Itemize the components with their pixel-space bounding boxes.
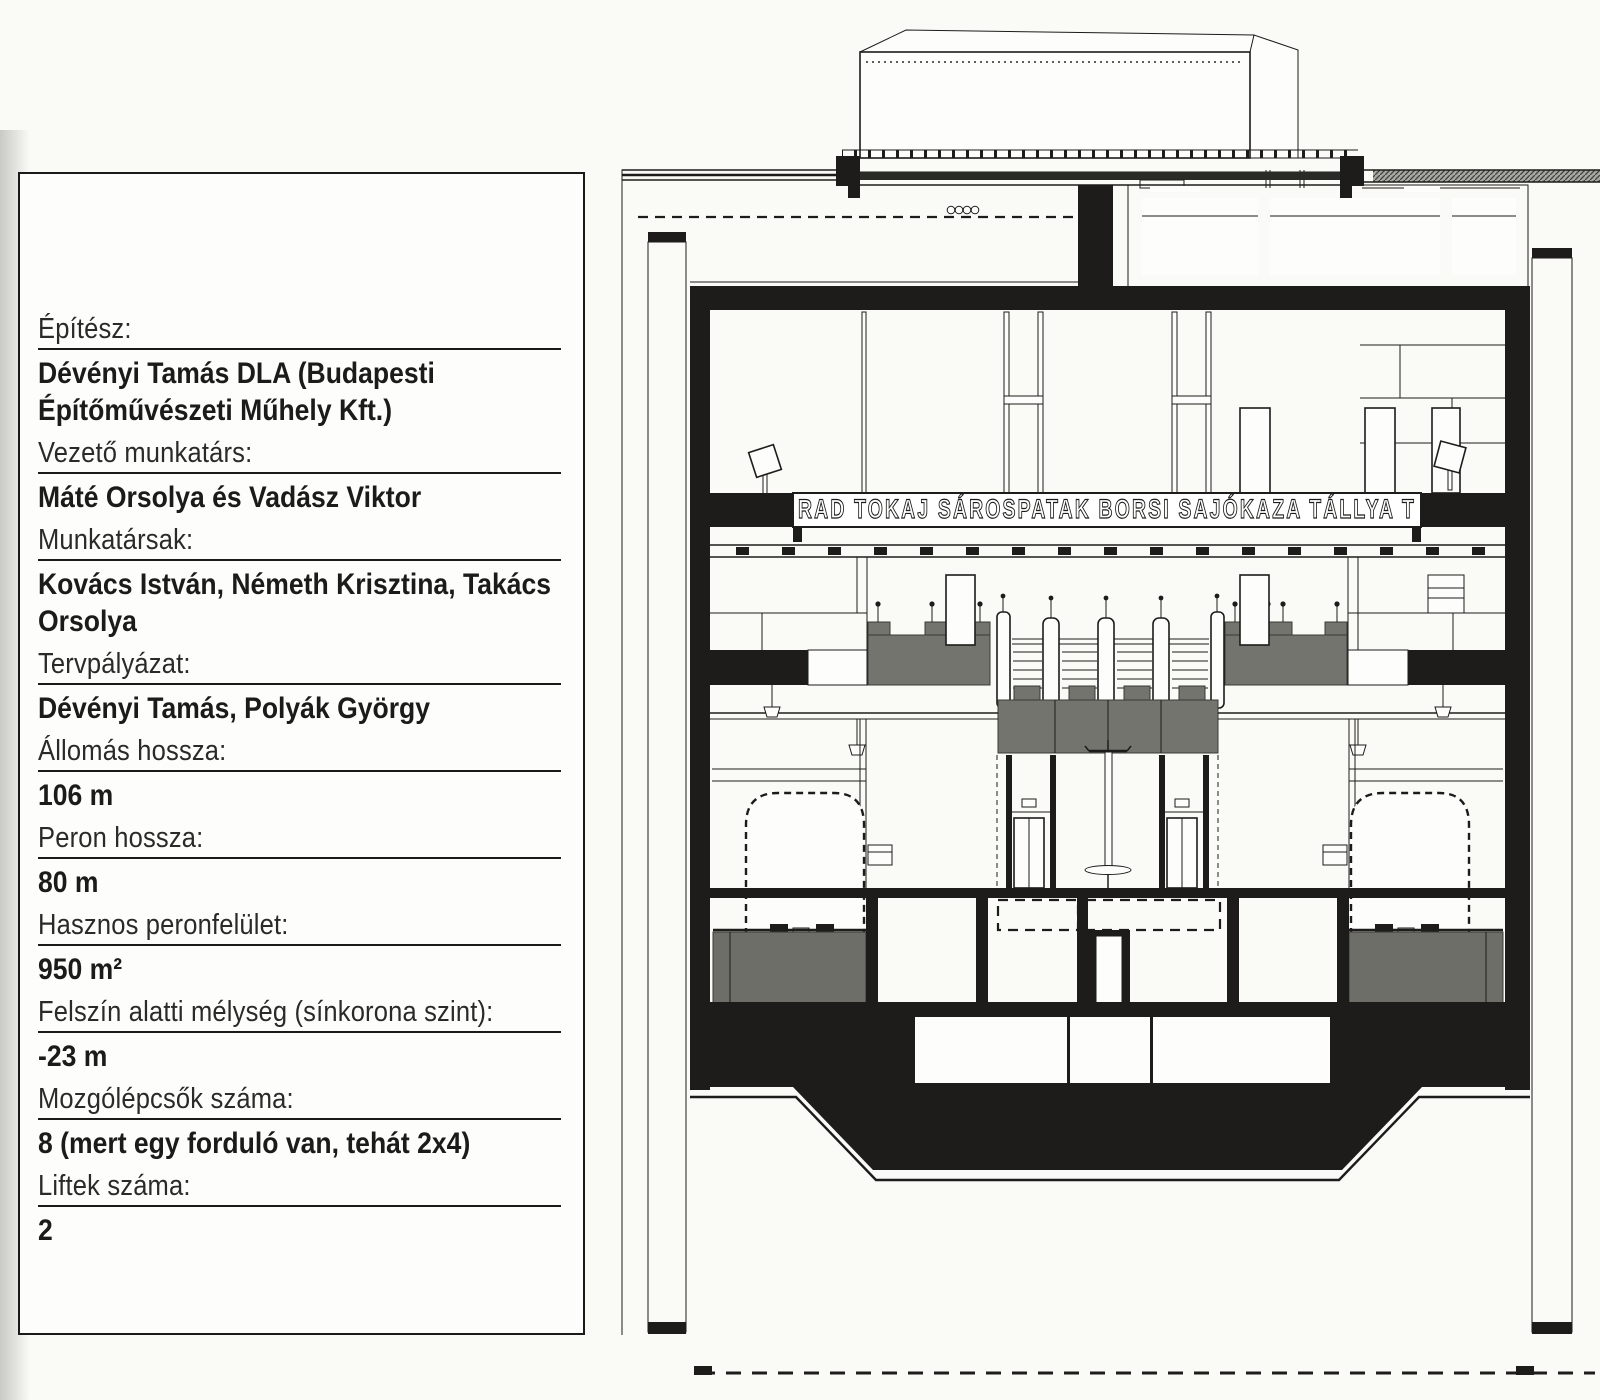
hall-column-pair-left: [1004, 312, 1043, 493]
base-room: [1070, 1017, 1150, 1083]
concourse-slab: [710, 545, 1505, 557]
platform-slab: [710, 888, 1505, 898]
vent-circles: [947, 206, 979, 214]
escalator-bank: [997, 594, 1224, 753]
mezzanine-level: [690, 557, 1530, 753]
diaphragm-wall-right: [1532, 258, 1572, 1332]
base-room: [1153, 1017, 1330, 1083]
train-right: [1351, 793, 1469, 936]
canopy-end-left: [836, 156, 860, 198]
field-value: Kovács István, Németh Krisztina, Takács …: [38, 566, 561, 640]
mezzanine-rooms-right: [1348, 557, 1505, 650]
sign-flag-left: [749, 445, 782, 494]
field-value: 950 m²: [38, 951, 561, 988]
mezzanine-beam-left: [690, 650, 808, 685]
frieze-text: RAD TOKAJ SÁROSPATAK BORSI SAJÓKAZA TÁLL…: [798, 493, 1416, 524]
hall-column-pair-right: [1172, 312, 1211, 493]
project-data-panel: Építész: Dévényi Tamás DLA (Budapesti Ép…: [18, 172, 585, 1335]
platform-lamp-post: [1085, 740, 1131, 888]
left-wall: [690, 287, 710, 1090]
mezzanine-door-right: [1240, 575, 1269, 645]
frieze-band: RAD TOKAJ SÁROSPATAK BORSI SAJÓKAZA TÁLL…: [690, 493, 1530, 542]
field-label: Liftek száma:: [38, 1171, 561, 1207]
handrail-posts: [1001, 594, 1220, 618]
track-bed-right: [1349, 930, 1503, 1003]
field-label: Állomás hossza:: [38, 736, 561, 772]
field-label: Munkatársak:: [38, 525, 561, 561]
field-value: 8 (mert egy forduló van, tehát 2x4): [38, 1125, 561, 1162]
train-left: [746, 793, 864, 936]
field-label: Építész:: [38, 314, 561, 350]
field-label: Vezető munkatárs:: [38, 438, 561, 474]
speaker-box-left: [868, 845, 892, 865]
track-bed-left: [713, 930, 866, 1003]
mezzanine-beam-right: [1408, 650, 1530, 685]
hall-doors-right: [1240, 408, 1460, 493]
hall-column: [862, 312, 866, 493]
field-value: Máté Orsolya és Vadász Viktor: [38, 479, 561, 516]
duct-dashed-left: [998, 900, 1078, 930]
diaphragm-wall-left: [648, 242, 686, 1332]
mezzanine-rooms-left: [710, 557, 867, 650]
ticket-hall: [749, 312, 1505, 494]
base-slab: [690, 1002, 1530, 1017]
surface-building: [860, 30, 1298, 158]
mezzanine-door-left: [946, 575, 975, 645]
field-label: Tervpályázat:: [38, 649, 561, 685]
field-label: Felszín alatti mélység (sínkorona szint)…: [38, 997, 561, 1033]
canopy-end-right: [1340, 156, 1364, 198]
field-value: Dévényi Tamás DLA (Budapesti Építőművész…: [38, 355, 561, 429]
bottom-structure: [690, 1017, 1595, 1375]
underpass-box: [1128, 180, 1528, 287]
right-wall: [1505, 287, 1530, 1090]
base-room: [915, 1017, 1067, 1083]
roof-slab: [690, 286, 1530, 310]
elevator-shaft-right: [1159, 755, 1209, 888]
field-label: Mozgólépcsők száma:: [38, 1084, 561, 1120]
duct-dashed-right: [1086, 900, 1220, 930]
field-value: 106 m: [38, 777, 561, 814]
elevator-indicator: [1022, 799, 1036, 807]
field-value: -23 m: [38, 1038, 561, 1075]
elevator-shaft-left: [1006, 755, 1056, 888]
speaker-box-right: [1323, 845, 1347, 865]
elevator-indicator: [1175, 799, 1189, 807]
field-label: Hasznos peronfelület:: [38, 910, 561, 946]
field-value: Dévényi Tamás, Polyák György: [38, 690, 561, 727]
field-value: 2: [38, 1212, 561, 1249]
field-value: 80 m: [38, 864, 561, 901]
field-label: Peron hossza:: [38, 823, 561, 859]
